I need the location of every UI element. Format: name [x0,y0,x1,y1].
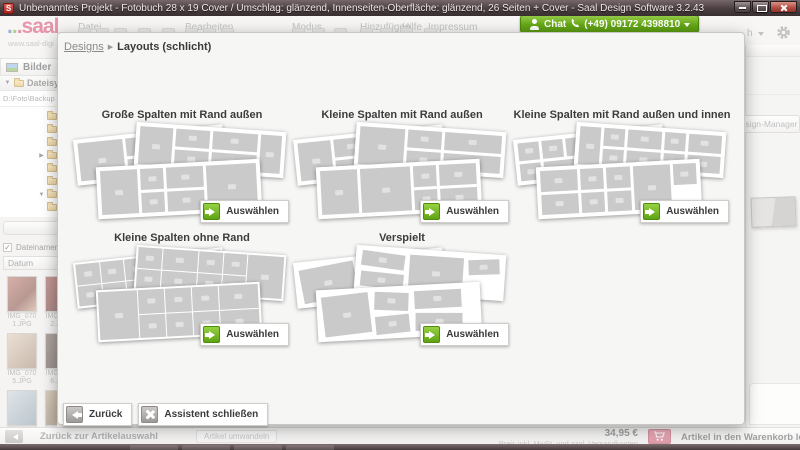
image-placeholder [627,129,661,149]
image-placeholder [607,190,632,212]
image-placeholder [540,169,578,191]
image-placeholder [688,134,722,154]
close-assistant-button[interactable]: Assistent schließen [138,403,268,426]
layout-option-title: Kleine Spalten mit Rand außen und innen [512,109,732,126]
layout-option-title: Kleine Spalten mit Rand außen [292,109,512,126]
breadcrumb-separator-icon: ▶ [108,43,113,51]
layout-wizard-modal: Designs ▶ Layouts (schlicht) Große Spalt… [57,32,745,425]
auswaehlen-button-label: Auswählen [446,206,506,217]
select-arrow-icon [423,326,440,343]
layout-option-big: Große Spalten mit Rand außen Auswählen [72,109,292,226]
window-controls [734,1,797,13]
chat-label: Chat [544,19,566,30]
taskbar-item [234,445,282,450]
auswaehlen-button-label: Auswählen [226,329,286,340]
window-title: Unbenanntes Projekt - Fotobuch 28 x 19 C… [19,3,730,14]
image-placeholder [100,260,126,283]
select-arrow-icon [423,203,440,220]
close-button[interactable] [770,1,797,13]
select-arrow-icon [203,326,220,343]
auswaehlen-button[interactable]: Auswählen [200,323,289,346]
image-placeholder [541,139,564,159]
chevron-down-icon [684,23,690,30]
image-placeholder [139,313,166,338]
taskbar-item [130,445,178,450]
image-placeholder [218,284,258,310]
image-placeholder [138,126,174,166]
image-placeholder [137,247,162,269]
image-placeholder [672,163,697,185]
auswaehlen-button-label: Auswählen [226,206,286,217]
image-placeholder [444,132,502,153]
image-placeholder [664,132,686,151]
close-assistant-label: Assistent schließen [164,409,265,420]
auswaehlen-button-label: Auswählen [666,206,726,217]
image-placeholder [321,292,373,337]
layout-option-medium: Kleine Spalten mit Rand außen Auswählen [292,109,512,226]
image-placeholder [320,169,359,215]
layout-option-small: Kleine Spalten mit Rand außen und innen … [512,109,732,226]
back-button[interactable]: Zurück [63,403,132,426]
auswaehlen-button[interactable]: Auswählen [420,323,509,346]
layout-option-title: Verspielt [292,232,512,249]
layout-preview-stack: Auswählen [75,249,289,349]
app-icon: S [3,3,14,14]
auswaehlen-button[interactable]: Auswählen [200,200,289,223]
image-placeholder [212,131,258,152]
layout-option-title: Kleine Spalten ohne Rand [72,232,292,249]
back-button-label: Zurück [89,409,129,420]
image-placeholder [580,168,605,190]
image-placeholder [165,287,192,312]
image-placeholder [98,290,140,340]
maximize-button[interactable] [752,1,769,13]
layout-option-dense: Kleine Spalten ohne Rand Auswählen [72,232,292,349]
image-placeholder [517,141,540,161]
image-placeholder [581,191,606,213]
image-placeholder [198,251,223,273]
titlebar: S Unbenanntes Projekt - Fotobuch 28 x 19… [0,0,800,16]
layout-preview-stack: Auswählen [295,126,509,226]
auswaehlen-button[interactable]: Auswählen [640,200,729,223]
taskbar-item [286,445,334,450]
app-window: S Unbenanntes Projekt - Fotobuch 28 x 19… [0,0,800,450]
chat-phone-number: (+49) 09172 4398810 [584,19,680,30]
back-arrow-icon [66,406,83,423]
image-placeholder [578,126,602,165]
image-placeholder [175,129,209,149]
breadcrumb-current: Layouts (schlicht) [117,41,211,53]
auswaehlen-button-label: Auswählen [446,329,506,340]
layout-options-grid: Große Spalten mit Rand außen Auswählen K… [72,109,734,349]
close-x-icon [141,406,158,423]
image-placeholder [469,259,500,275]
chat-button[interactable]: Chat (+49) 09172 4398810 [520,15,699,33]
taskbar-sliver [0,444,800,450]
layout-option-title: Große Spalten mit Rand außen [72,109,292,126]
select-arrow-icon [203,203,220,220]
image-placeholder [166,312,193,337]
image-placeholder [138,289,165,314]
image-placeholder [414,289,462,309]
layout-preview-stack: Auswählen [515,126,729,226]
image-placeholder [374,292,409,311]
breadcrumb: Designs ▶ Layouts (schlicht) [64,41,211,53]
image-placeholder [162,249,199,272]
image-placeholder [603,128,625,147]
image-placeholder [192,286,219,311]
select-arrow-icon [643,203,660,220]
breadcrumb-designs-link[interactable]: Designs [64,41,104,53]
modal-footer: Zurück Assistent schließen [63,403,268,426]
layout-option-playful: Verspielt Auswählen [292,232,512,349]
layout-preview-stack: Auswählen [75,126,289,226]
auswaehlen-button[interactable]: Auswählen [420,200,509,223]
layout-preview-stack: Auswählen [295,249,509,349]
image-placeholder [100,169,139,215]
image-placeholder [439,163,477,185]
image-placeholder [413,165,438,187]
image-placeholder [358,126,406,167]
taskbar-item [182,445,230,450]
image-placeholder [541,193,579,215]
phone-icon [570,18,580,31]
image-placeholder [606,166,631,188]
minimize-button[interactable] [734,1,751,13]
image-placeholder [375,313,411,334]
image-placeholder [360,166,412,213]
image-placeholder [141,191,166,213]
image-placeholder [75,262,101,285]
chat-person-icon [529,19,540,30]
image-placeholder [166,166,204,188]
image-placeholder [407,129,441,149]
image-placeholder [258,135,282,174]
image-placeholder [223,253,248,275]
image-placeholder [361,250,405,270]
image-placeholder [140,168,165,190]
